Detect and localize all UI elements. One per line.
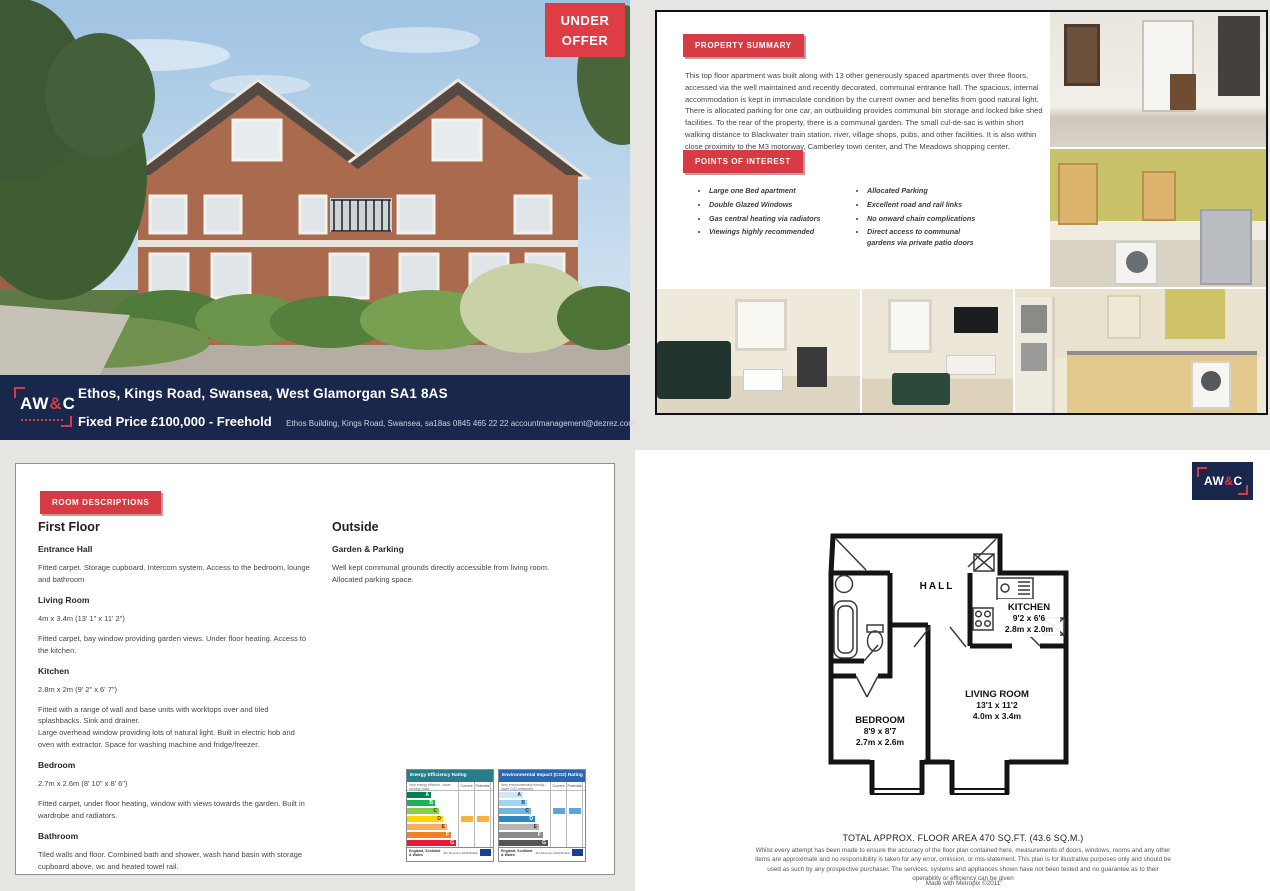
bedroom-label: BEDROOM: [855, 715, 905, 726]
poi-item: Large one Bed apartment: [709, 186, 829, 197]
kitchen-imperial: 9'2 x 6'6: [1013, 613, 1046, 623]
epc-bar-row: B: [407, 799, 493, 807]
brochure-page: UNDER OFFER AW&C Ethos, Kings Road, Swan…: [0, 0, 1270, 891]
epc-eu-directive-label: EU Directive 2002/91/EC: [444, 851, 478, 855]
epc-top-note: Very energy efficient - lower running co…: [407, 782, 459, 790]
room-body: Fitted carpet. Storage cupboard. Interco…: [38, 562, 310, 585]
floorplan-disclaimer: Whilst every attempt has been made to en…: [753, 846, 1173, 884]
epc-bar-row: A: [407, 791, 493, 799]
epc-eu-directive-label: EU Directive 2002/91/EC: [536, 851, 570, 855]
logo-text: AW&C: [20, 394, 76, 413]
epc-potential-header: Potential: [475, 782, 491, 790]
epc-bar-row: G: [407, 839, 493, 847]
under-offer-line2: OFFER: [545, 31, 625, 51]
total-floor-area: TOTAL APPROX. FLOOR AREA 470 SQ.FT. (43.…: [753, 833, 1173, 843]
epc-chart-title: Environmental Impact (CO2) Rating: [499, 770, 585, 782]
epc-bar-row: G: [499, 839, 585, 847]
floorplan-drawing: HALL KITCHEN 9'2 x 6'6 2.8m x 2.0m LIVIN…: [800, 513, 1105, 831]
epc-potential-marker: [569, 808, 581, 814]
living-room-metric: 4.0m x 3.4m: [973, 711, 1022, 721]
price-row: Fixed Price £100,000 - Freehold Ethos Bu…: [78, 413, 635, 431]
room-title: Bedroom: [38, 760, 310, 770]
outside-body: Well kept communal grounds directly acce…: [332, 562, 578, 585]
epc-bar-row: F: [407, 831, 493, 839]
room-dimensions: 4m x 3.4m (13' 1" x 11' 2"): [38, 613, 310, 625]
epc-region-label: England, Scotland & Wales: [409, 849, 442, 857]
kitchen-label: KITCHEN: [1008, 602, 1050, 613]
poi-item: No onward chain complications: [867, 214, 987, 225]
logo-bracket-icon: [61, 416, 72, 427]
room-title: Bathroom: [38, 831, 310, 841]
room-title: Kitchen: [38, 666, 310, 676]
outside-subheading: Garden & Parking: [332, 544, 578, 554]
points-of-interest-badge: POINTS OF INTEREST: [683, 150, 803, 173]
floorplan-credit: Made with Metropix ©2011: [753, 880, 1173, 887]
agency-logo: AW&C: [14, 387, 72, 427]
bedroom-imperial: 8'9 x 8'7: [864, 726, 897, 736]
epc-current-header: Current: [459, 782, 475, 790]
agency-contact: Ethos Building, Kings Road, Swansea, sa1…: [286, 419, 635, 428]
epc-bar-row: E: [407, 823, 493, 831]
epc-bar-row: C: [407, 807, 493, 815]
eu-flag-icon: [572, 849, 583, 856]
epc-bar-row: D: [499, 815, 585, 823]
poi-item: Direct access to communal gardens via pr…: [867, 227, 987, 249]
agency-logo-small: AW&C: [1192, 462, 1253, 500]
first-floor-heading: First Floor: [38, 520, 310, 534]
poi-column-right: Allocated Parking Excellent road and rai…: [855, 186, 987, 252]
epc-bar-row: C: [499, 807, 585, 815]
room-body: Fitted carpet, bay window providing gard…: [38, 633, 310, 656]
poi-item: Gas central heating via radiators: [709, 214, 829, 225]
cover-panel: UNDER OFFER AW&C Ethos, Kings Road, Swan…: [0, 0, 630, 440]
room-title: Entrance Hall: [38, 544, 310, 554]
logo-text: AW&C: [1204, 474, 1243, 488]
property-summary-badge: PROPERTY SUMMARY: [683, 34, 804, 57]
points-of-interest-list: Large one Bed apartment Double Glazed Wi…: [697, 186, 987, 252]
poi-item: Double Glazed Windows: [709, 200, 829, 211]
room-descriptions-left-column: First Floor Entrance Hall Fitted carpet.…: [38, 520, 310, 880]
epc-potential-header: Potential: [567, 782, 583, 790]
kitchen-metric: 2.8m x 2.0m: [1005, 624, 1054, 634]
bedroom-metric: 2.7m x 2.6m: [856, 737, 905, 747]
property-address: Ethos, Kings Road, Swansea, West Glamorg…: [78, 386, 448, 401]
epc-bar-row: E: [499, 823, 585, 831]
epc-top-note: Very environmentally friendly - lower CO…: [499, 782, 551, 790]
epc-potential-marker: [477, 816, 489, 822]
address-banner: AW&C Ethos, Kings Road, Swansea, West Gl…: [0, 375, 630, 440]
photo-kitchen-angle: [1050, 149, 1266, 287]
under-offer-badge: UNDER OFFER: [545, 3, 625, 57]
living-room-imperial: 13'1 x 11'2: [976, 700, 1018, 710]
poi-item: Viewings highly recommended: [709, 227, 829, 238]
energy-efficiency-chart: Energy Efficiency RatingVery energy effi…: [406, 769, 494, 862]
epc-current-header: Current: [551, 782, 567, 790]
room-descriptions-badge: ROOM DESCRIPTIONS: [40, 491, 161, 514]
room-title: Living Room: [38, 595, 310, 605]
summary-panel: PROPERTY SUMMARY This top floor apartmen…: [655, 10, 1268, 415]
photo-kitchen-units: [1015, 289, 1266, 413]
photo-living-room: [657, 289, 860, 413]
epc-bar-row: D: [407, 815, 493, 823]
room-body: Fitted carpet, under floor heating, wind…: [38, 798, 310, 821]
room-dimensions: 2.8m x 2m (9' 2" x 6' 7"): [38, 684, 310, 696]
house-photo: [0, 0, 630, 375]
hall-label: HALL: [920, 581, 955, 592]
environmental-impact-chart: Environmental Impact (CO2) RatingVery en…: [498, 769, 586, 862]
epc-current-marker: [461, 816, 473, 822]
logo-bracket-icon: [1238, 485, 1248, 495]
epc-region-label: England, Scotland & Wales: [501, 849, 534, 857]
logo-tagline: [21, 419, 65, 421]
room-descriptions-right-column: Outside Garden & Parking Well kept commu…: [332, 520, 578, 593]
poi-item: Excellent road and rail links: [867, 200, 987, 211]
epc-chart-title: Energy Efficiency Rating: [407, 770, 493, 782]
room-descriptions-panel: ROOM DESCRIPTIONS First Floor Entrance H…: [15, 463, 615, 875]
photo-entrance-hall: [1050, 12, 1266, 147]
floorplan-panel: AW&C: [635, 450, 1270, 891]
epc-current-marker: [553, 808, 565, 814]
poi-column-left: Large one Bed apartment Double Glazed Wi…: [697, 186, 829, 252]
living-room-label: LIVING ROOM: [965, 689, 1029, 700]
epc-bar-row: F: [499, 831, 585, 839]
poi-item: Allocated Parking: [867, 186, 987, 197]
eu-flag-icon: [480, 849, 491, 856]
room-body: Tiled walls and floor. Combined bath and…: [38, 849, 310, 872]
photo-living-room-tv: [862, 289, 1013, 413]
balcony-railing: [330, 198, 392, 232]
outside-heading: Outside: [332, 520, 578, 534]
under-offer-line1: UNDER: [545, 11, 625, 31]
room-dimensions: 2.7m x 2.6m (8' 10" x 8' 6"): [38, 778, 310, 790]
summary-paragraph: This top floor apartment was built along…: [685, 70, 1047, 152]
price-text: Fixed Price £100,000 - Freehold: [78, 414, 272, 429]
epc-bar-row: A: [499, 791, 585, 799]
room-body: Fitted with a range of wall and base uni…: [38, 704, 310, 751]
epc-bar-row: B: [499, 799, 585, 807]
